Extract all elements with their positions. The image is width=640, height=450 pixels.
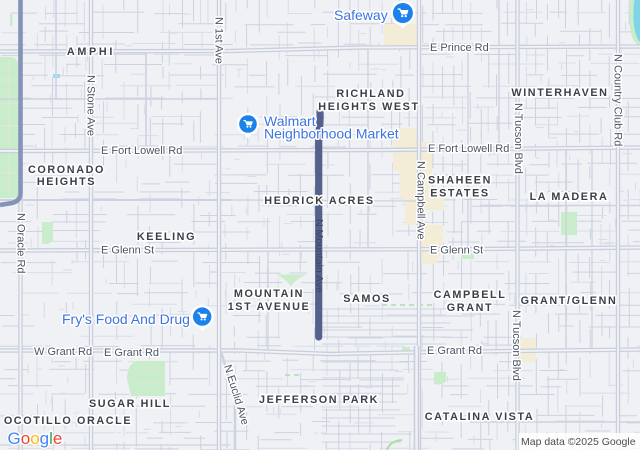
svg-text:KEELING: KEELING	[137, 231, 196, 243]
svg-text:SHAHEEN: SHAHEEN	[428, 175, 492, 187]
svg-text:N Oracle Rd: N Oracle Rd	[15, 213, 27, 274]
svg-text:N Mountain Ave: N Mountain Ave	[313, 219, 325, 293]
svg-text:OCOTILLO ORACLE: OCOTILLO ORACLE	[4, 415, 132, 427]
svg-text:GRANT: GRANT	[447, 302, 493, 314]
svg-text:N Stone Ave: N Stone Ave	[85, 75, 97, 136]
svg-text:Google: Google	[8, 429, 63, 448]
svg-text:CAMPBELL: CAMPBELL	[434, 289, 507, 301]
svg-text:AMPHI: AMPHI	[67, 46, 115, 58]
svg-text:HEIGHTS: HEIGHTS	[37, 176, 96, 188]
svg-text:ESTATES: ESTATES	[430, 188, 489, 200]
svg-text:CORONADO: CORONADO	[28, 164, 105, 176]
svg-text:MOUNTAIN: MOUNTAIN	[234, 288, 304, 300]
svg-text:N Country Club Rd: N Country Club Rd	[612, 54, 624, 146]
svg-text:E Glenn St: E Glenn St	[101, 245, 154, 257]
svg-text:Fry's Food And Drug: Fry's Food And Drug	[62, 311, 190, 327]
svg-text:SUGAR HILL: SUGAR HILL	[89, 398, 171, 410]
svg-text:SAMOS: SAMOS	[343, 293, 391, 305]
svg-text:1ST AVENUE: 1ST AVENUE	[228, 301, 311, 313]
svg-text:N Tucson Blvd: N Tucson Blvd	[512, 103, 524, 174]
svg-text:E Glenn St: E Glenn St	[430, 245, 483, 257]
svg-text:W Grant Rd: W Grant Rd	[34, 346, 92, 358]
svg-text:WINTERHAVEN: WINTERHAVEN	[511, 87, 608, 99]
svg-text:CATALINA VISTA: CATALINA VISTA	[425, 411, 535, 423]
svg-text:E Prince Rd: E Prince Rd	[430, 42, 489, 54]
svg-text:GRANT/GLENN: GRANT/GLENN	[521, 295, 618, 307]
svg-text:JEFFERSON PARK: JEFFERSON PARK	[259, 394, 379, 406]
svg-text:E Fort Lowell Rd: E Fort Lowell Rd	[428, 143, 509, 155]
svg-text:LA MADERA: LA MADERA	[530, 191, 609, 203]
svg-text:Neighborhood Market: Neighborhood Market	[264, 126, 399, 142]
svg-text:Map data ©2025 Google: Map data ©2025 Google	[521, 436, 636, 448]
svg-text:E Fort Lowell Rd: E Fort Lowell Rd	[101, 145, 182, 157]
svg-text:RICHLAND: RICHLAND	[336, 88, 405, 100]
svg-text:HEDRICK ACRES: HEDRICK ACRES	[264, 195, 374, 207]
svg-text:E Grant Rd: E Grant Rd	[104, 347, 159, 359]
svg-text:N Campbell Ave: N Campbell Ave	[415, 161, 427, 240]
svg-text:N 1st Ave: N 1st Ave	[213, 17, 225, 64]
svg-text:Safeway: Safeway	[334, 7, 388, 23]
svg-text:HEIGHTS WEST: HEIGHTS WEST	[318, 101, 419, 113]
svg-text:N Tucson Blvd: N Tucson Blvd	[510, 310, 522, 381]
svg-text:E Grant Rd: E Grant Rd	[427, 345, 482, 357]
